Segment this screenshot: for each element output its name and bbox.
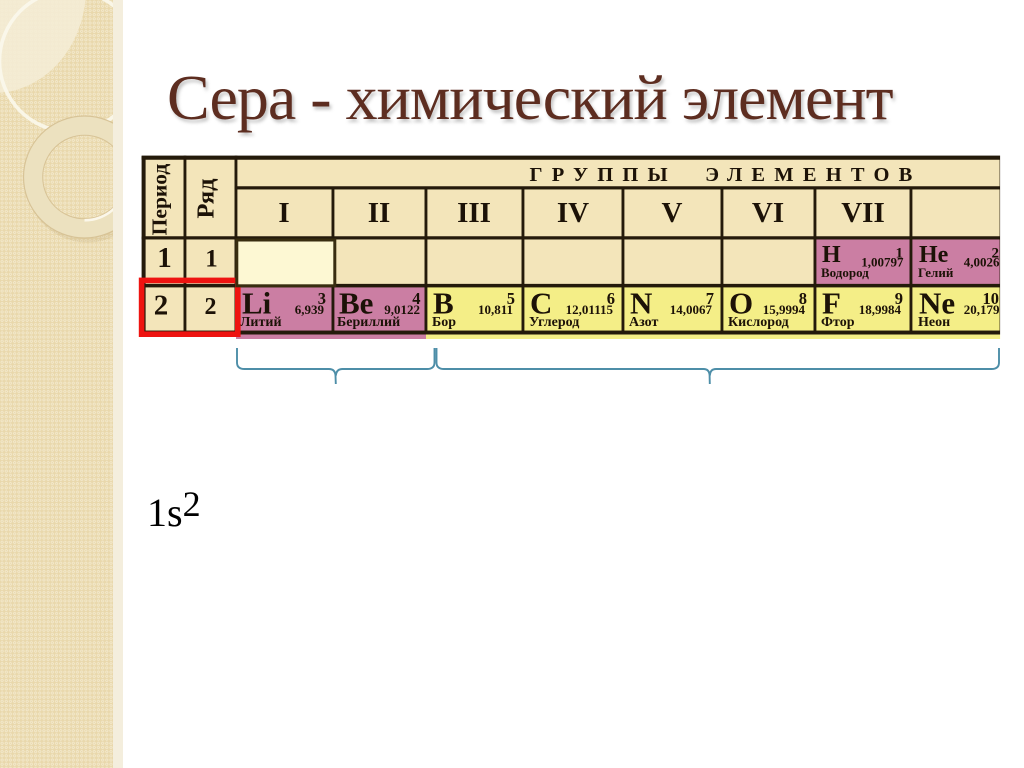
svg-text:Бор: Бор [432,315,456,330]
svg-text:Ряд: Ряд [193,178,220,219]
svg-text:14,0067: 14,0067 [670,302,713,317]
svg-text:Углерод: Углерод [529,315,579,330]
svg-text:Водород: Водород [821,265,869,280]
svg-text:Период: Период [148,164,172,236]
svg-text:Неон: Неон [918,315,950,330]
svg-text:Азот: Азот [629,315,658,330]
svg-text:VI: VI [752,197,784,229]
svg-text:Фтор: Фтор [821,315,855,330]
svg-text:Гелий: Гелий [918,265,954,280]
svg-text:1: 1 [205,246,218,273]
svg-text:IV: IV [557,197,589,229]
svg-text:II: II [368,197,391,229]
svg-text:ГРУППЫ ЭЛЕМЕНТОВ: ГРУППЫ ЭЛЕМЕНТОВ [530,164,922,186]
svg-text:I: I [278,197,289,229]
svg-text:V: V [662,197,683,229]
svg-text:Кислород: Кислород [728,315,789,330]
svg-text:4,0026: 4,0026 [964,255,1000,270]
svg-text:20,179: 20,179 [964,302,1000,317]
svg-text:2: 2 [205,294,217,320]
svg-text:VII: VII [841,197,885,229]
svg-text:2: 2 [154,290,169,322]
svg-text:Бериллий: Бериллий [337,315,400,330]
svg-text:18,9984: 18,9984 [859,302,902,317]
svg-text:III: III [457,197,491,229]
svg-text:1: 1 [157,242,172,274]
svg-text:Литий: Литий [240,315,282,330]
svg-text:10,811: 10,811 [478,302,513,317]
svg-text:6,939: 6,939 [295,302,325,317]
